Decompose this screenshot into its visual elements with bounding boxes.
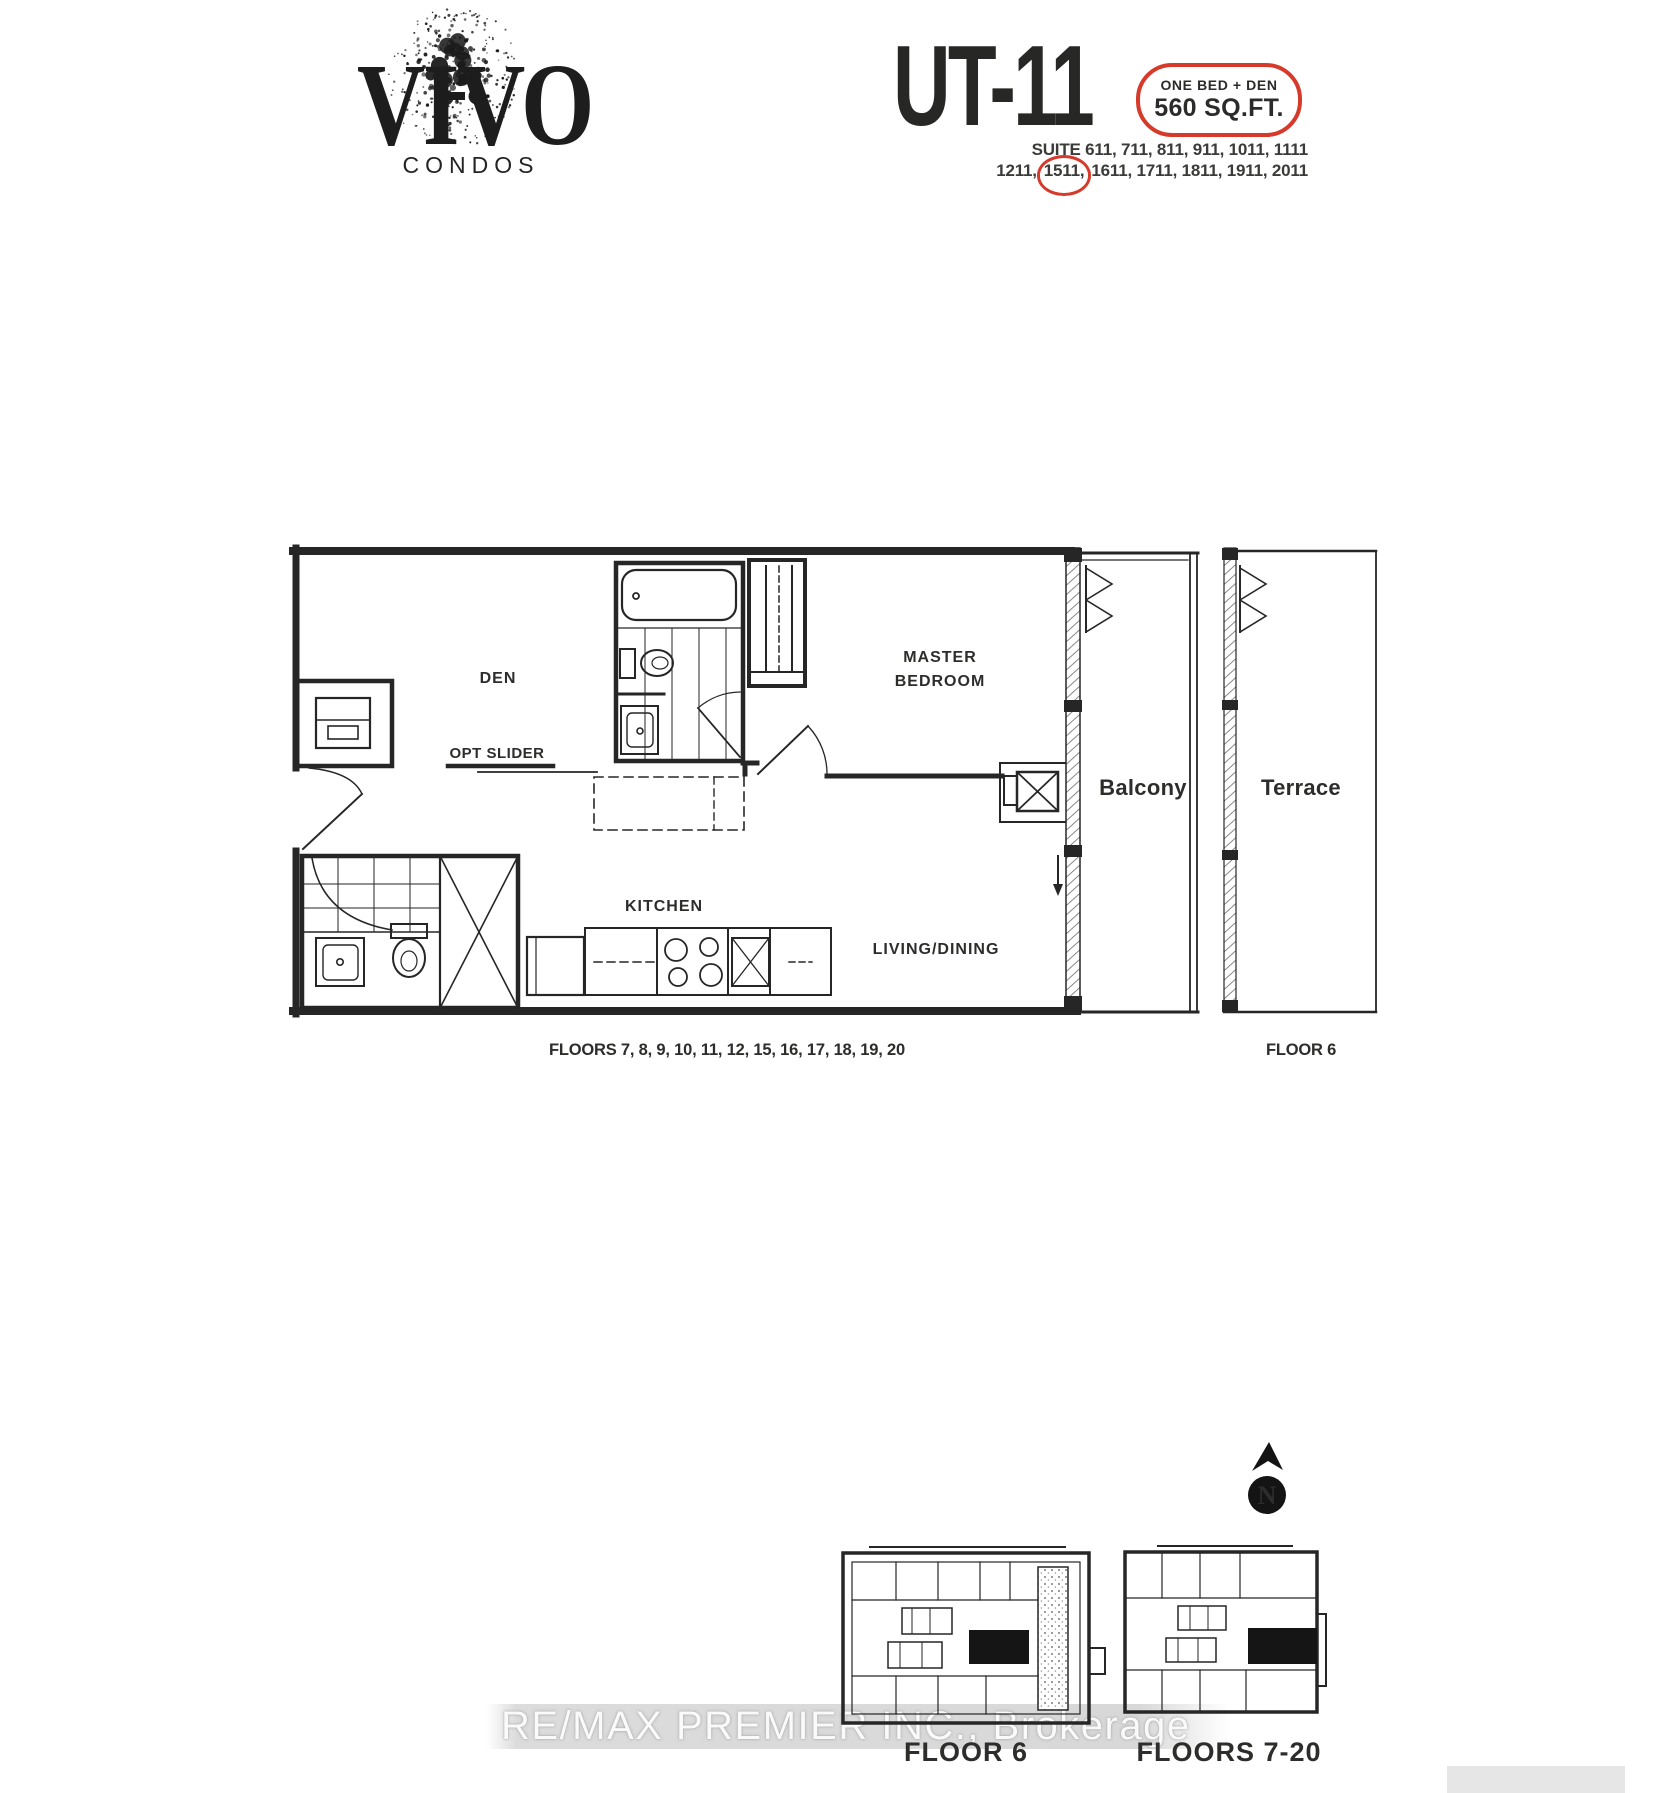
second-bathroom [302, 856, 518, 1008]
kitchen-sink [732, 938, 769, 986]
bedroom-closet [749, 560, 805, 686]
bathroom-door [698, 692, 740, 757]
living-dining-label: LIVING/DINING [873, 941, 1000, 958]
terrace: Terrace [1222, 548, 1376, 1012]
toilet [620, 649, 673, 678]
entry-alcove [299, 681, 392, 766]
kitchen: KITCHEN [527, 898, 831, 995]
entry-door [303, 768, 362, 849]
keyplan-floors-7-20: FLOORS 7-20 [1125, 1546, 1326, 1767]
balcony-label: Balcony [1099, 775, 1187, 800]
master-bedroom-label-1: MASTER [903, 649, 977, 666]
keyplan-floor6-label: FLOOR 6 [904, 1737, 1028, 1767]
optional-island-dashed [594, 777, 744, 830]
linen-closet-x [440, 856, 518, 1008]
highlighted-unit-floor6 [969, 1630, 1029, 1664]
highlighted-unit-floors720 [1248, 1628, 1317, 1664]
north-letter: N [1258, 1481, 1277, 1510]
ac-unit-niche [1000, 763, 1071, 822]
den-label: DEN [480, 670, 517, 687]
opt-slider-label: OPT SLIDER [449, 745, 544, 762]
north-arrow-icon: N [1248, 1442, 1286, 1514]
balcony-rail [1190, 553, 1197, 1012]
living-dining: LIVING/DINING [873, 941, 1000, 958]
master-door [758, 726, 827, 776]
balcony: Balcony [1082, 553, 1198, 1012]
floorplan-drawing: DEN OPT SLIDER [0, 0, 1680, 1793]
balcony-column-brace [1086, 566, 1112, 632]
bathroom-sink [621, 706, 658, 754]
floorplan-page: VIVO CONDOS UT-11 ONE BED + DEN 560 SQ.F… [0, 0, 1680, 1793]
terrace-column-brace [1240, 566, 1266, 632]
tub-faucet [633, 593, 639, 599]
floor6-note: FLOOR 6 [1266, 1041, 1336, 1059]
den-room: DEN OPT SLIDER [448, 670, 744, 830]
main-bathroom [616, 563, 743, 761]
keyplan-floor6: FLOOR 6 [843, 1547, 1105, 1767]
stove [657, 928, 728, 995]
terrace-label: Terrace [1261, 775, 1341, 800]
master-bedroom-label-2: BEDROOM [895, 673, 986, 690]
second-bath-door-arc [312, 858, 392, 930]
second-bath-sink [316, 938, 364, 986]
kitchen-label: KITCHEN [625, 898, 703, 915]
master-bedroom: MASTER BEDROOM [743, 649, 1071, 822]
keyplan-terrace-strip [1038, 1567, 1068, 1710]
keyplan-floors720-label: FLOORS 7-20 [1136, 1737, 1321, 1767]
sliding-door-arrow [1053, 856, 1063, 896]
floors-note: FLOORS 7, 8, 9, 10, 11, 12, 15, 16, 17, … [549, 1041, 905, 1059]
